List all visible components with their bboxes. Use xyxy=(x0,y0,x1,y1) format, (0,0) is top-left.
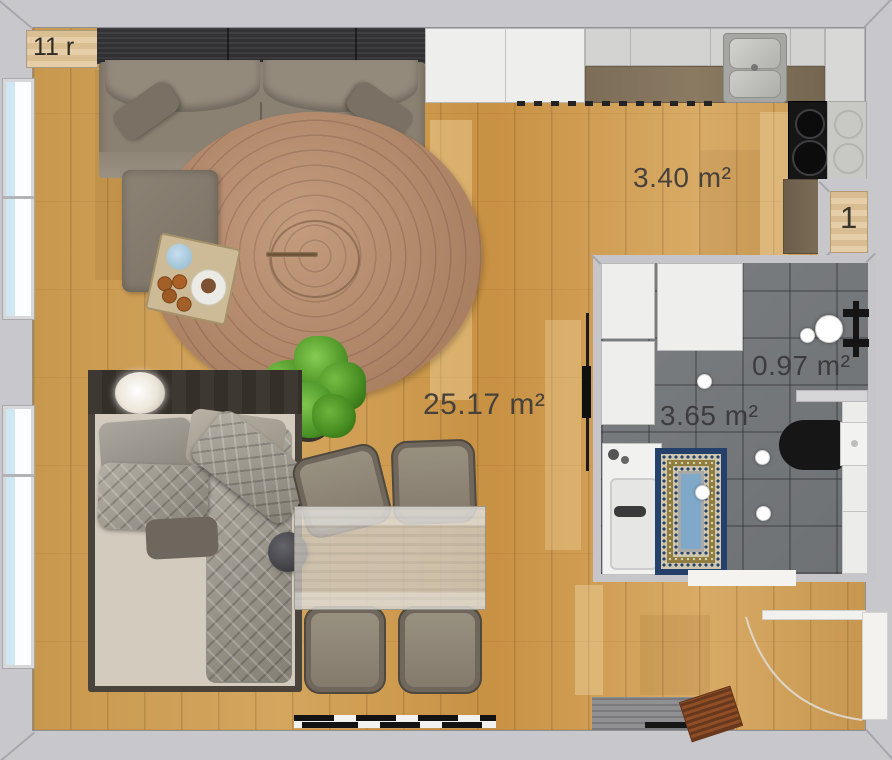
entry-shelf[interactable] xyxy=(762,610,866,620)
bed[interactable] xyxy=(88,370,302,692)
wall-corner-bevel xyxy=(0,0,33,29)
dining-chair[interactable] xyxy=(304,606,386,694)
washing-machine[interactable] xyxy=(602,443,662,575)
bath-rug-band xyxy=(673,466,709,557)
stove-burner xyxy=(795,109,825,139)
kitchen-upper-cabinets[interactable] xyxy=(585,28,825,66)
washer-handle xyxy=(614,506,646,517)
toilet-cistern xyxy=(840,422,868,466)
living-area-label: 25.17 m² xyxy=(423,388,545,422)
dining-table[interactable] xyxy=(294,506,486,610)
bathroom-area-label: 3.65 m² xyxy=(660,400,758,432)
washer-knob xyxy=(621,456,629,464)
plant-leaves xyxy=(312,394,356,438)
muffin xyxy=(171,273,189,291)
cabinet-seam xyxy=(790,28,791,66)
chair-seat xyxy=(311,613,379,687)
cistern-button xyxy=(851,440,858,447)
stove-cover xyxy=(827,101,867,181)
shower-area-label: 0.97 m² xyxy=(752,350,850,382)
stove-burner-ring xyxy=(834,110,863,139)
vanity-seam xyxy=(843,511,867,512)
floor-plan-canvas: 11 r xyxy=(0,0,892,760)
cabinet-seam xyxy=(630,28,631,66)
counter-edge-ticks xyxy=(517,101,713,106)
window-mullion xyxy=(3,474,34,477)
sink-basin xyxy=(729,70,781,98)
ceiling-light xyxy=(695,485,710,500)
stove-cooktop[interactable] xyxy=(788,101,829,181)
wall-corner-bevel xyxy=(864,0,892,28)
window[interactable] xyxy=(2,405,35,669)
bath-rug-band xyxy=(661,454,721,569)
window-glass xyxy=(6,409,31,665)
bathroom-cabinet[interactable] xyxy=(601,341,655,425)
bathroom-cabinet[interactable] xyxy=(601,263,655,339)
ceiling-light xyxy=(755,450,770,465)
wardrobe-seam xyxy=(227,28,229,64)
shower-arm xyxy=(843,339,869,347)
wall-corner-bevel xyxy=(865,729,892,760)
shower-arm xyxy=(843,309,869,317)
wardrobe-seam xyxy=(355,28,357,64)
radiator[interactable] xyxy=(294,715,496,728)
ceiling-light xyxy=(756,506,771,521)
sink-faucet xyxy=(751,64,758,71)
kitchen-tall-cabinet[interactable] xyxy=(425,28,585,103)
chair-seat xyxy=(405,613,475,687)
bathroom-cabinet[interactable] xyxy=(657,263,743,351)
plan-tag-label: 11 r xyxy=(33,33,74,62)
ceiling-light xyxy=(800,328,815,343)
radiator-fins xyxy=(294,722,496,728)
bathroom-door-threshold[interactable] xyxy=(688,570,796,586)
ceiling-light xyxy=(697,374,712,389)
bath-rug-band xyxy=(667,460,715,563)
cabinet-seam xyxy=(710,28,711,66)
bath-rug-center xyxy=(678,471,704,552)
kitchen-area-label: 3.40 m² xyxy=(633,162,731,194)
kitchen-corner-cabinet[interactable] xyxy=(825,28,865,103)
stove-burner-ring xyxy=(833,143,864,174)
window-glass xyxy=(6,82,31,316)
radiator-fins xyxy=(294,715,496,721)
bed-pillow xyxy=(145,516,219,560)
washer-knob xyxy=(608,449,619,460)
wall-tv[interactable] xyxy=(582,366,591,418)
washer-door xyxy=(610,478,658,570)
kitchen-side-cabinet[interactable] xyxy=(783,179,823,254)
white-plate xyxy=(187,266,230,309)
rug-center-ring xyxy=(270,220,360,298)
muffin xyxy=(175,295,193,313)
window-mullion xyxy=(3,196,34,199)
round-basin[interactable] xyxy=(815,315,843,343)
plan-tag-patch[interactable]: 11 r xyxy=(26,30,98,68)
kitchen-sink[interactable] xyxy=(723,33,787,103)
stove-burner xyxy=(792,140,828,176)
bedside-lamp[interactable] xyxy=(115,372,165,414)
food-item xyxy=(200,277,218,295)
entry-door[interactable] xyxy=(862,612,888,720)
bath-rug[interactable] xyxy=(655,448,727,575)
cabinet-seam xyxy=(505,28,506,103)
serving-tray[interactable] xyxy=(145,232,241,325)
door-1-label: 1 xyxy=(840,200,858,236)
dining-chair[interactable] xyxy=(398,606,482,694)
wall-corner-bevel xyxy=(0,732,35,760)
partition-wall xyxy=(796,390,868,402)
window[interactable] xyxy=(2,78,35,320)
kitchen-counter[interactable] xyxy=(585,66,825,103)
toilet[interactable] xyxy=(779,420,842,470)
wardrobe[interactable] xyxy=(97,28,425,64)
blue-plate xyxy=(164,241,195,272)
rug-center-bar xyxy=(266,252,318,257)
